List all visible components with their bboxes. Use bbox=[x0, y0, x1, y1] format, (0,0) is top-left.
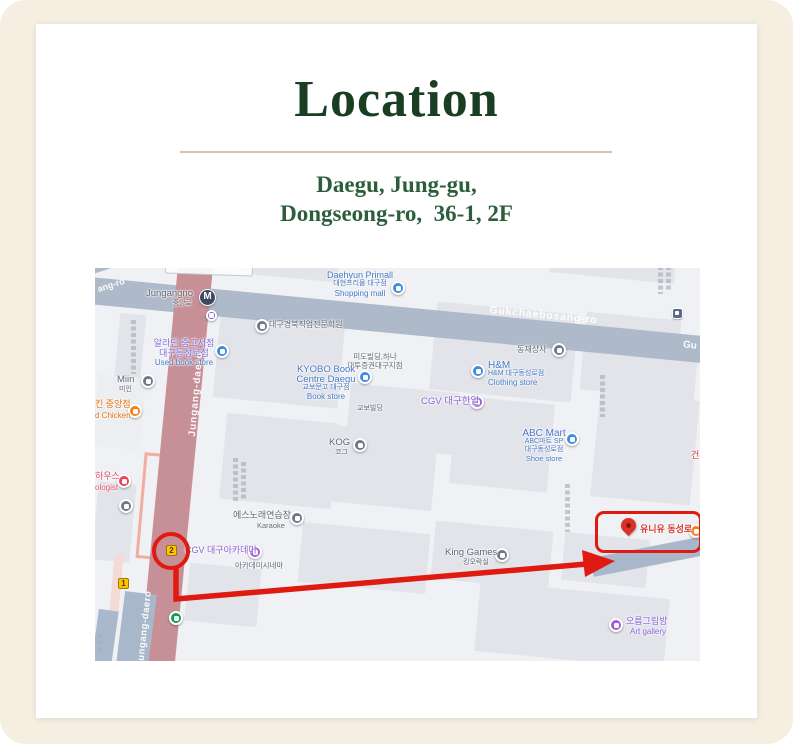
route-arrow bbox=[95, 268, 700, 661]
address-line2: Dongseong-ro, 36-1, 2F bbox=[280, 201, 513, 226]
page-title: Location bbox=[36, 70, 757, 129]
map-image[interactable]: ang-ro Gukchaebosang-ro Gu Jungang-daero… bbox=[95, 268, 700, 661]
exit-circle-annotation bbox=[152, 532, 190, 570]
address-text: Daegu, Jung-gu,Dongseong-ro, 36-1, 2F bbox=[36, 170, 757, 228]
address-line1: Daegu, Jung-gu, bbox=[316, 172, 476, 197]
location-card: Location Daegu, Jung-gu,Dongseong-ro, 36… bbox=[36, 24, 757, 718]
title-divider bbox=[180, 151, 612, 153]
